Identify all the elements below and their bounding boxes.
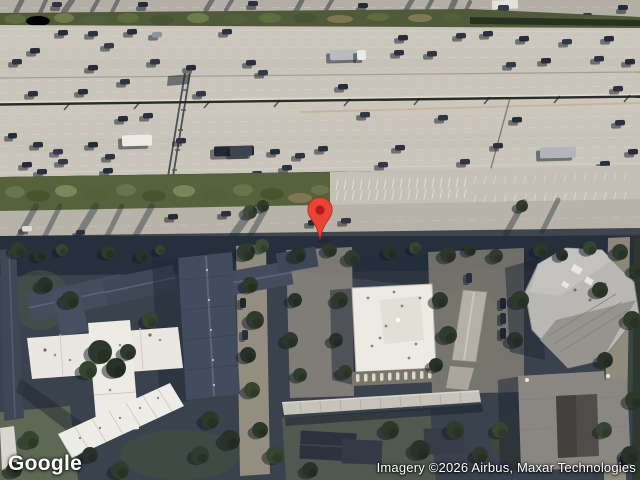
satellite-map-canvas[interactable] [0,0,640,480]
google-logo[interactable]: Google [8,452,82,476]
imagery-attribution: Imagery ©2026 Airbus, Maxar Technologies [377,460,636,475]
map-viewport: Google Imagery ©2026 Airbus, Maxar Techn… [0,0,640,480]
courtyard-building [498,371,631,472]
pin-dot-icon [315,205,324,214]
